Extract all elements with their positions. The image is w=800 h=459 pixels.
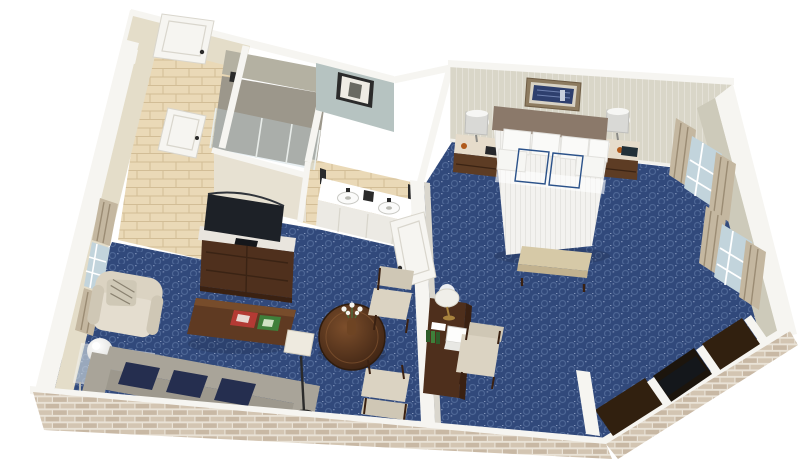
toiletries bbox=[363, 190, 374, 202]
entry-door-handle bbox=[200, 50, 204, 54]
floor-plan-image bbox=[0, 0, 800, 459]
amber-glass bbox=[461, 143, 467, 149]
bed-artwork bbox=[525, 78, 581, 111]
suite-floor-plan bbox=[0, 0, 800, 459]
accent-pillow bbox=[106, 279, 137, 306]
tv-armoire bbox=[198, 193, 296, 304]
faucet-right bbox=[387, 198, 391, 202]
pillow-white-6 bbox=[575, 155, 605, 178]
faucet-left bbox=[346, 188, 350, 192]
water-bottles bbox=[426, 330, 440, 344]
entry-door bbox=[153, 14, 214, 64]
pillow-white-5 bbox=[497, 149, 527, 172]
king-bed bbox=[492, 106, 610, 265]
